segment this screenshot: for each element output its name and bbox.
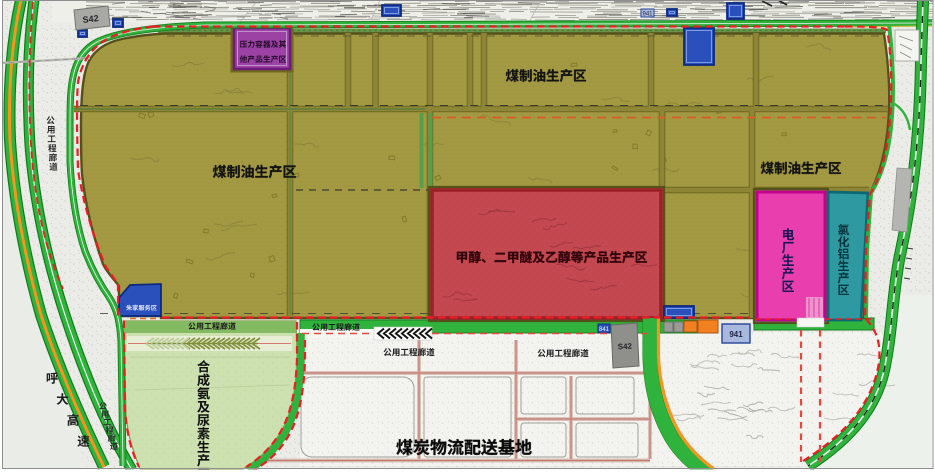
svg-text:941: 941 xyxy=(642,12,653,18)
svg-text:941: 941 xyxy=(729,330,743,339)
svg-text:S42: S42 xyxy=(82,13,99,25)
svg-text:S42: S42 xyxy=(618,342,633,352)
svg-text:841: 841 xyxy=(599,327,610,333)
